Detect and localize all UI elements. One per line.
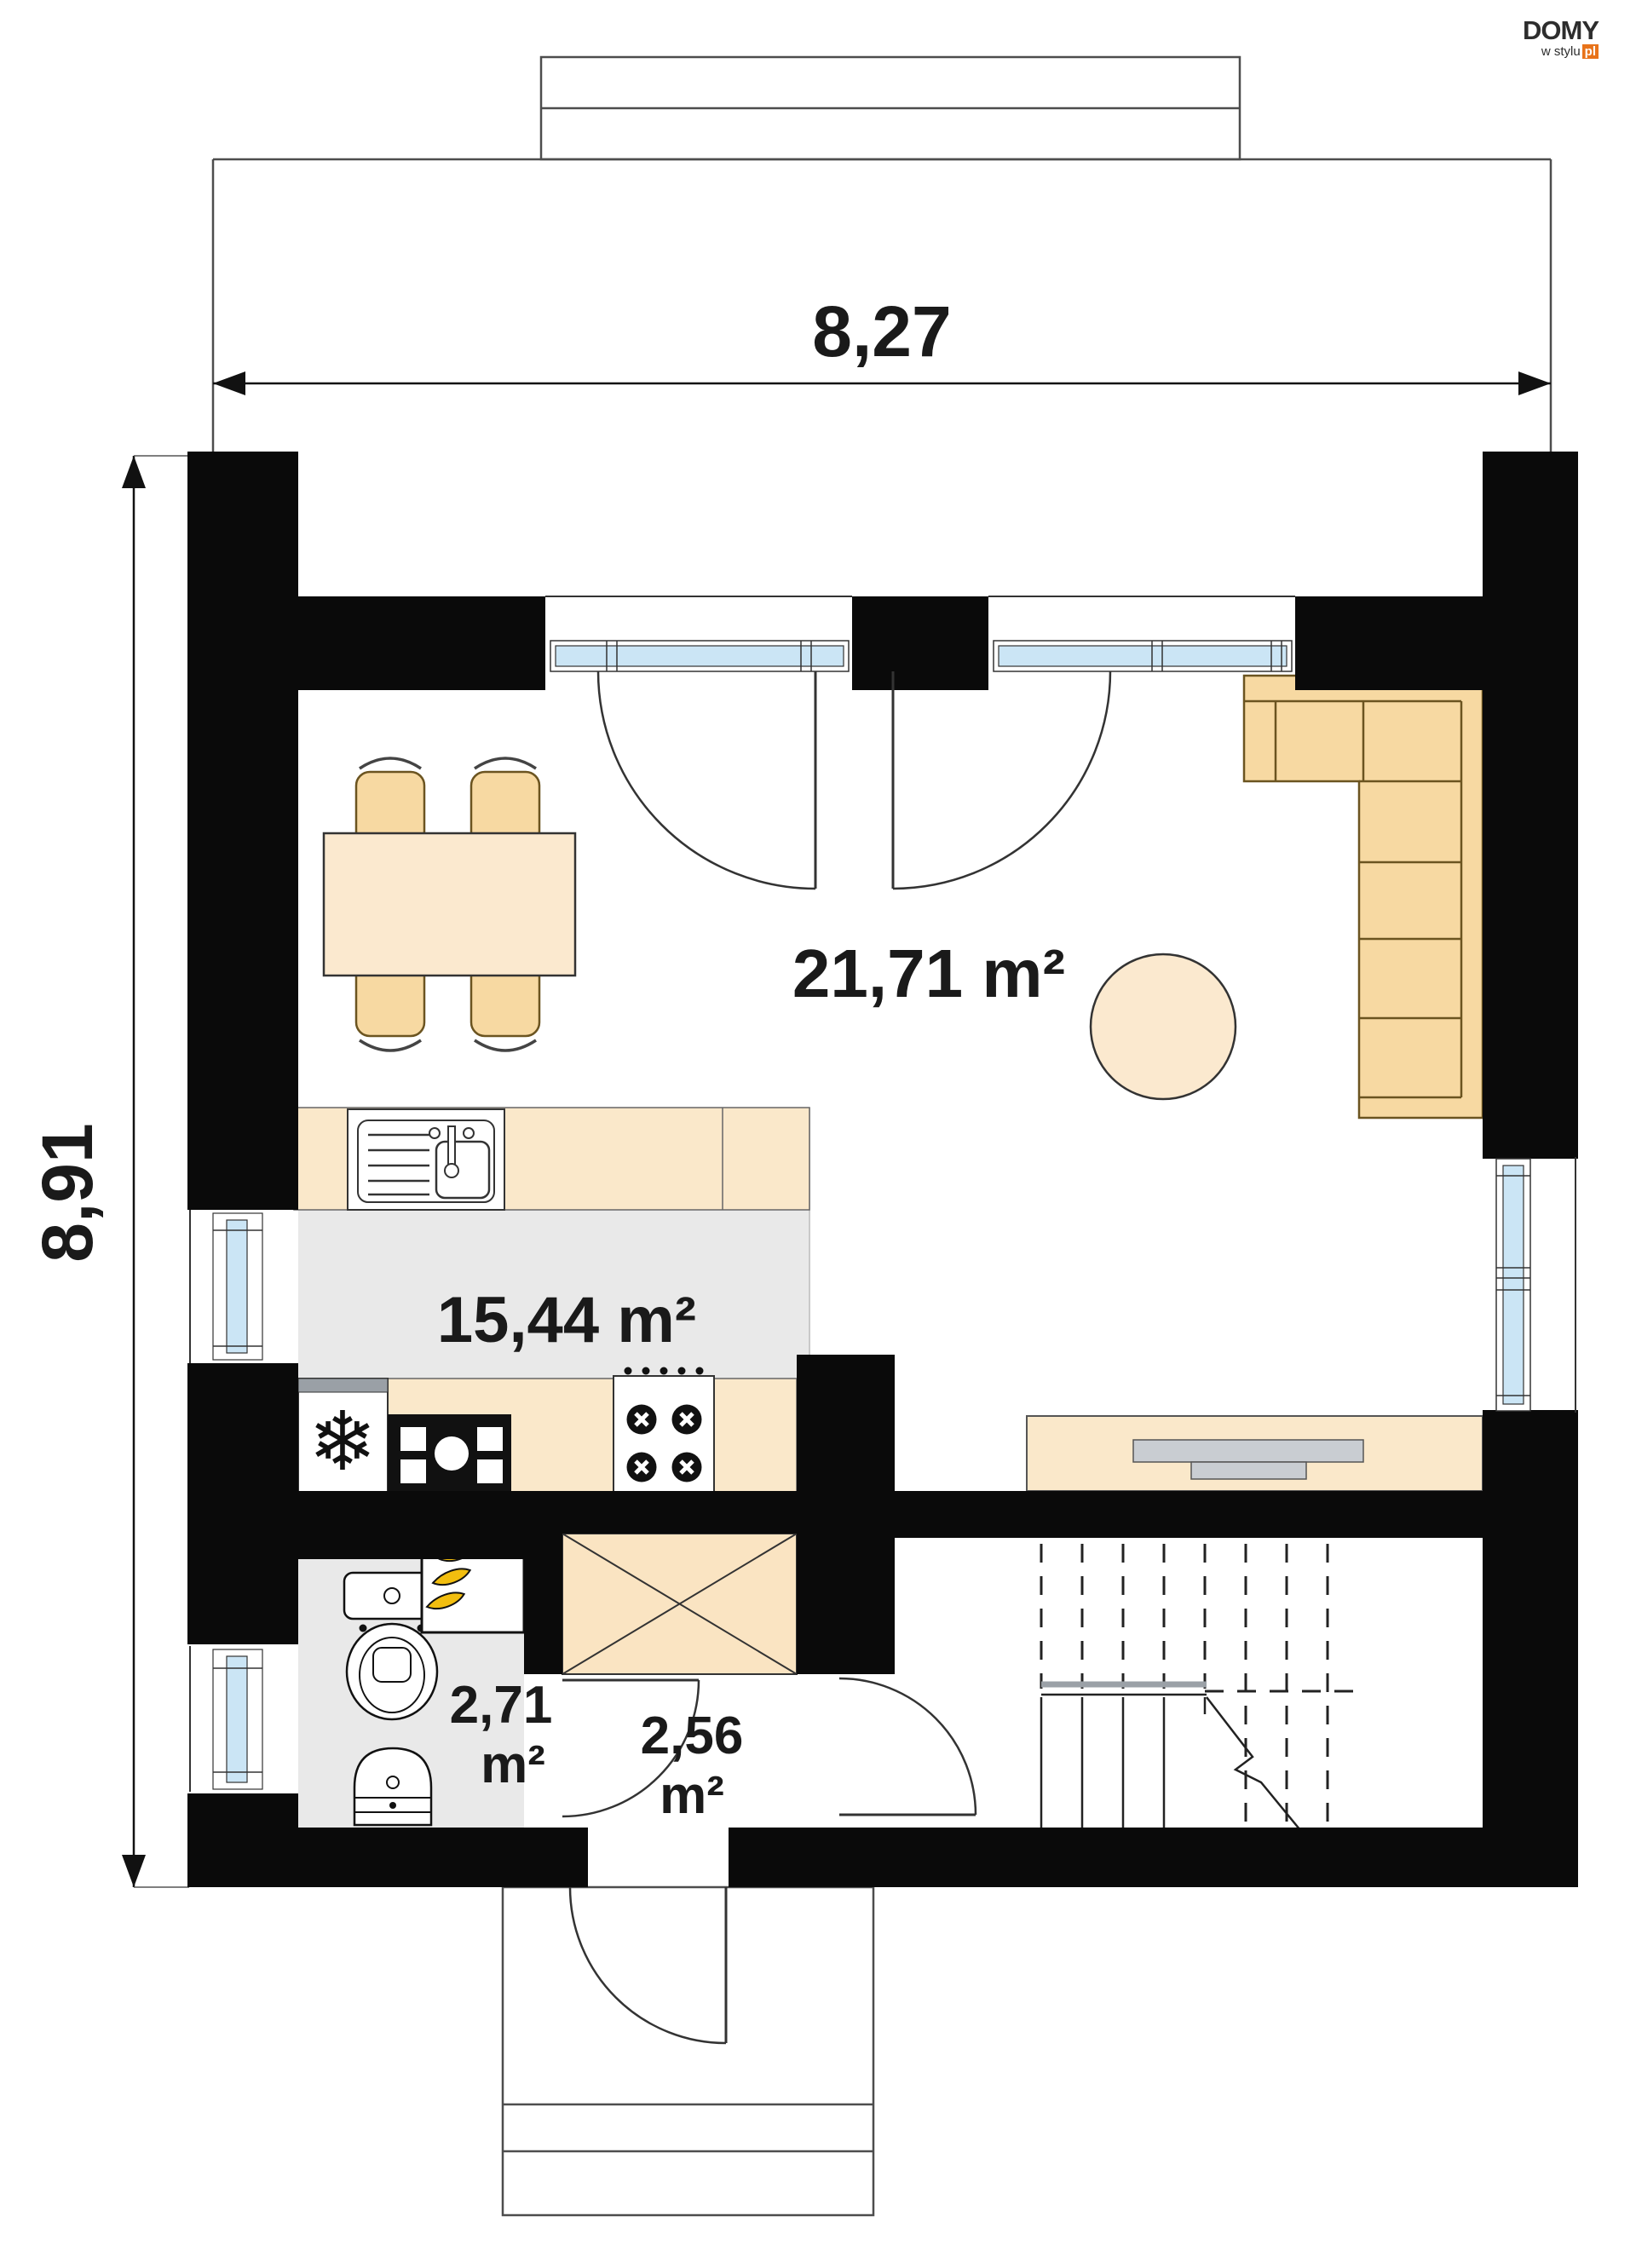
- logo-brand: DOMY: [1523, 17, 1599, 43]
- door-terrace-left: [598, 671, 815, 889]
- sideboard: [1027, 1416, 1483, 1491]
- width-dimension-label: 8,27: [812, 291, 952, 371]
- coffee-table: [1091, 954, 1236, 1099]
- height-dimension-label: 8,91: [27, 1123, 107, 1263]
- logo-tagline: w stylu: [1541, 45, 1581, 58]
- door-terrace-right: [893, 671, 1110, 889]
- hall-area-unit: m²: [660, 1766, 724, 1825]
- bathroom-area-unit: m²: [481, 1736, 545, 1794]
- door-hall-living: [839, 1678, 976, 1815]
- dimension-horizontal: 8,27: [213, 291, 1551, 395]
- window-left-kitchen: [190, 1210, 262, 1363]
- shaft-crossed-box: [562, 1534, 797, 1674]
- stove-icon: [613, 1367, 714, 1494]
- corner-sofa: [1244, 676, 1483, 1118]
- logo-tld-badge: pl: [1582, 44, 1599, 59]
- dimension-vertical: 8,91: [27, 456, 189, 1887]
- arrow-up-icon: [122, 456, 146, 488]
- logo: DOMY w stylupl: [1523, 17, 1599, 59]
- bathroom-area-value: 2,71: [450, 1676, 553, 1735]
- window-right: [1496, 1157, 1576, 1413]
- dining-set: [324, 758, 575, 1051]
- entry-porch: [503, 1887, 873, 2215]
- dining-table: [324, 833, 575, 976]
- tv-icon: [1133, 1440, 1363, 1462]
- wall-bath-right: [524, 1491, 562, 1674]
- oven-icon: [388, 1414, 511, 1493]
- wall-hall-stairs: [797, 1355, 895, 1674]
- wall-right: [1483, 452, 1578, 1159]
- wall-left: [187, 452, 298, 1210]
- wall-bottom: [187, 1828, 588, 1887]
- arrow-left-icon: [213, 371, 245, 395]
- kitchen-area-label: 15,44 m²: [437, 1284, 696, 1356]
- washbasin-icon: [354, 1748, 431, 1825]
- window-top-right: [988, 596, 1295, 671]
- fridge-icon: ❄: [298, 1379, 388, 1493]
- arrow-right-icon: [1518, 371, 1551, 395]
- wall-under-sideboard: [895, 1491, 1483, 1538]
- window-left-bathroom: [190, 1646, 262, 1792]
- window-top-left: [545, 596, 852, 671]
- sink-icon: [348, 1109, 504, 1210]
- stair-treads: [1041, 1697, 1205, 1828]
- living-area-label: 21,71 m²: [792, 935, 1065, 1011]
- arrow-down-icon: [122, 1855, 146, 1887]
- hall-area-value: 2,56: [641, 1707, 744, 1765]
- wall-kitchen-bath: [298, 1491, 562, 1559]
- floor-plan: 8,27 8,91 ❄: [0, 0, 1636, 2268]
- wall-top: [298, 596, 545, 690]
- svg-text:❄: ❄: [308, 1394, 377, 1489]
- stairs: [1041, 1544, 1363, 1830]
